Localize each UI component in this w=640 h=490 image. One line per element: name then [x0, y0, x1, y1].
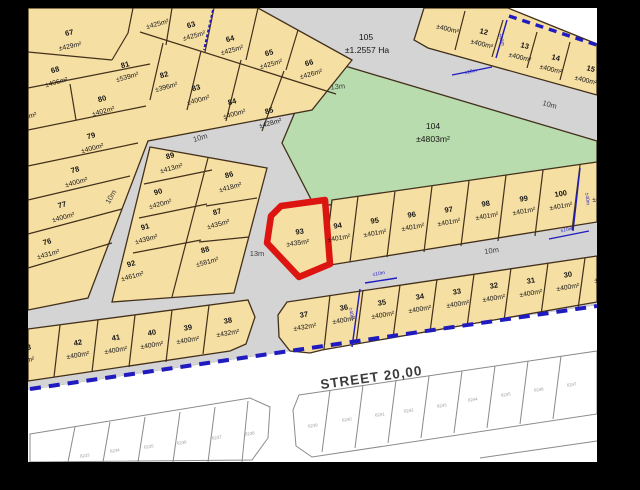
frame-left [0, 0, 28, 490]
plot-37-number: 37 [299, 309, 309, 319]
plot-105-number: 105 [359, 32, 374, 42]
plot-105-area: ±1.2557 Ha [345, 45, 390, 55]
plot-33-number: 33 [452, 286, 462, 296]
road-13m-a: 13m [330, 81, 345, 91]
plot-40-number: 40 [147, 327, 157, 337]
plot-35-number: 35 [377, 297, 387, 307]
frame-right [597, 0, 640, 490]
road-13m-b: 13m [250, 249, 265, 258]
plot-39-number: 39 [183, 322, 193, 332]
plot-41-number: 41 [111, 332, 121, 342]
plot-36-number: 36 [339, 302, 349, 312]
frame-bottom [0, 462, 640, 490]
plot-104-number: 104 [426, 121, 441, 131]
plot-98-number: 98 [481, 198, 491, 208]
plot-31-number: 31 [526, 275, 536, 285]
plot-96-number: 96 [407, 209, 417, 219]
plot-99-number: 99 [519, 193, 529, 203]
plot-93-number: 93 [295, 226, 305, 236]
plot-95-number: 95 [370, 215, 380, 225]
plot-38-number: 38 [223, 315, 233, 325]
plot-42-number: 42 [73, 337, 83, 347]
subdivision-plan-map: 104 ±4803m² [0, 0, 640, 490]
plot-97-number: 97 [444, 204, 454, 214]
frame-top [0, 0, 640, 8]
plot-32-number: 32 [489, 280, 499, 290]
plot-104-area: ±4803m² [416, 134, 450, 144]
plot-30-number: 30 [563, 269, 573, 279]
